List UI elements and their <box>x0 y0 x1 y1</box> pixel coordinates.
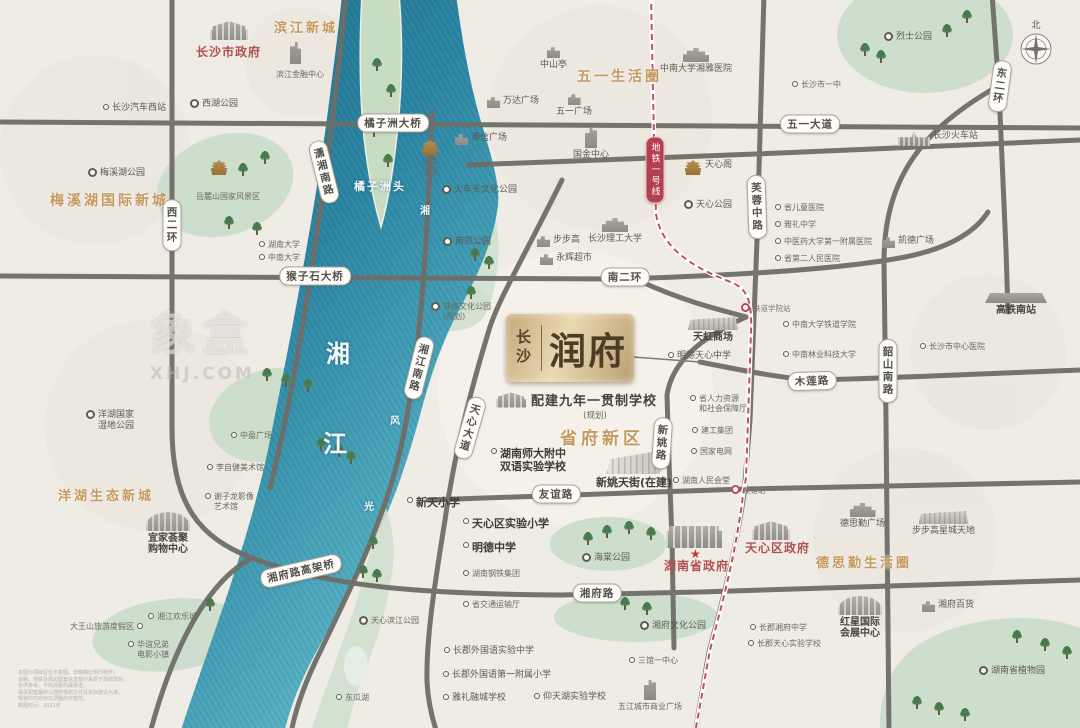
poi-text: 滨江金融中心 <box>276 70 324 80</box>
poi-text: 湘江欢乐城 <box>157 612 197 622</box>
tree-icon <box>962 10 972 23</box>
poi-label <box>666 526 722 548</box>
poi-text: 步步高 <box>553 235 580 246</box>
poi-label: 中南大学铁道学院 <box>783 320 856 330</box>
poi-marker-icon <box>103 104 109 110</box>
poi-label: 步步高 <box>537 235 580 247</box>
poi-marker-icon <box>690 395 696 401</box>
bldw-icon <box>850 503 876 517</box>
poi-marker-icon <box>783 321 789 327</box>
road-label: 友谊路 <box>532 485 581 504</box>
poi-label <box>752 520 790 540</box>
train-icon <box>898 131 930 146</box>
poi-marker-icon <box>673 477 679 483</box>
poi-label: 谢子龙影像 艺术馆 <box>205 492 254 512</box>
poi-text: 天心公园 <box>696 200 732 211</box>
poi-text: 华谊兄弟 电影小镇 <box>137 640 169 660</box>
poi-label: 海信广场 <box>455 133 507 145</box>
poi-marker-icon <box>463 601 469 607</box>
poi-marker-icon <box>668 352 674 358</box>
poi-text: 宜家荟聚 购物中心 <box>148 533 188 555</box>
tree-icon <box>224 216 234 229</box>
poi-label: 中南大学湘雅医院 <box>660 48 732 75</box>
poi-label: 东瓜湖 <box>336 693 369 703</box>
poi-marker-icon <box>792 81 798 87</box>
poi-marker-icon <box>231 432 237 438</box>
poi-label: 明德天心中学 <box>668 351 731 362</box>
poi-marker-icon <box>359 616 368 625</box>
poi-label: 湘江欢乐城 <box>148 612 197 622</box>
poi-text: 长郡外国语第一附属小学 <box>452 670 551 681</box>
bld-icon <box>547 46 560 58</box>
poi-text: 长沙市政府 <box>196 47 261 58</box>
poi-text: 凯德广场 <box>898 236 934 247</box>
poi-marker-icon <box>190 99 199 108</box>
poi-label: 湖南大学 <box>259 240 300 250</box>
poi-text: 中南大学湘雅医院 <box>660 64 732 75</box>
poi-text: 湖南大学 <box>268 240 300 250</box>
poi-label: 省儿童医院 <box>775 203 824 213</box>
poi-label: 德思勤广场 <box>840 503 885 530</box>
poi-marker-icon <box>443 694 449 700</box>
disclaimer: 本图为项目区位示意图，非精确比例尺制作，道路、地铁及周边配套信息部分来源于政府规… <box>18 670 128 709</box>
poi-label: 杜甫 江阁 <box>421 140 439 177</box>
disclaimer-line: 制图时间：2021年 <box>18 703 128 710</box>
poi-text: 天心滨江公园 <box>371 616 419 626</box>
poi-label: 长沙汽车西站 <box>103 103 166 114</box>
tree-icon <box>624 521 634 534</box>
tree-icon <box>262 368 272 381</box>
poi-text: 湖南钢铁集团 <box>472 569 520 579</box>
poi-label: 天心公园 <box>684 200 732 211</box>
poi-marker-icon <box>128 641 134 647</box>
tree-icon <box>466 286 476 299</box>
mallw-icon <box>688 317 738 330</box>
poi-marker-icon <box>783 351 789 357</box>
tree-icon <box>205 598 215 611</box>
poi-label: 五江城市商业广场 <box>618 680 682 712</box>
poi-marker-icon <box>629 657 635 663</box>
river-label: 光 <box>364 498 376 513</box>
poi-text: 国金中心 <box>573 150 609 161</box>
poi-text: 永辉超市 <box>556 253 592 264</box>
road-label: 木莲路 <box>787 371 836 392</box>
road-label: 新姚路 <box>651 417 674 470</box>
poi-label: 长沙市中心医院 <box>920 342 985 352</box>
poi-label: 长沙市一中 <box>792 80 841 90</box>
poi-marker-icon <box>748 640 754 646</box>
poi-text: 天虹商场 <box>693 332 733 343</box>
poi-marker-icon <box>920 343 926 349</box>
poi-marker-icon <box>443 237 452 246</box>
bldw-icon <box>683 48 709 62</box>
poi-text: 中山亭 <box>540 60 567 71</box>
poi-label: 中盈广场 <box>231 431 272 441</box>
poi-text: 大王山旅游度假区 <box>70 622 134 632</box>
poi-label: 雅礼中学 <box>775 220 816 230</box>
road-label: 橘子洲大桥 <box>357 114 429 133</box>
poi-text: 长沙火车站 <box>933 131 978 142</box>
poi-label: 湘府百货 <box>922 600 974 612</box>
tree-icon <box>912 696 922 709</box>
poi-label <box>210 160 228 175</box>
road-label: 南二环 <box>601 268 650 287</box>
compass: 北 <box>1018 18 1054 71</box>
poi-text: 省交通运输厅 <box>472 600 520 610</box>
poi-text: 步步高星城天地 <box>912 526 975 537</box>
temple-icon <box>210 160 228 175</box>
poi-label: 烈士公园 <box>884 32 932 43</box>
poi-marker-icon <box>205 493 211 499</box>
poi-text: 长沙市中心医院 <box>929 342 985 352</box>
tree-icon <box>484 256 494 269</box>
poi-label: 省人力资源 和社会保障厅 <box>690 394 747 414</box>
poi-label: 五一广场 <box>556 93 592 118</box>
tower2-icon <box>290 42 301 64</box>
tree-icon <box>358 565 368 578</box>
flat-icon <box>985 293 1047 303</box>
poi-label: 天心滨江公园 <box>359 616 419 626</box>
project-school-note: 配建九年一贯制学校 <box>496 390 657 409</box>
bld-icon <box>922 600 935 612</box>
poi-label: 湖南师大附中 双语实验学校 <box>491 447 566 473</box>
poi-text: 中南林业科技大学 <box>792 350 856 360</box>
poi-text: 长沙理工大学 <box>588 234 642 245</box>
poi-label: 湖南省植物园 <box>979 666 1045 677</box>
poi-text: 湖南省政府 <box>664 561 729 572</box>
compass-icon <box>1018 31 1054 67</box>
poi-label: 建工集团 <box>692 426 733 436</box>
poi-text: 中医药大学第一附属医院 <box>784 237 872 247</box>
poi-label: 中山亭 <box>540 46 567 71</box>
river-label: 江 <box>323 424 349 459</box>
poi-text: 湖南省植物园 <box>991 666 1045 677</box>
poi-marker-icon <box>463 518 469 524</box>
tree-icon <box>1012 630 1022 643</box>
poi-text: 西湖公园 <box>202 99 238 110</box>
poi-text: 国家电网 <box>700 447 732 457</box>
poi-label <box>290 42 301 64</box>
district-label-shengfu: 省府新区 <box>560 424 644 449</box>
poi-text: 天心阁 <box>705 160 732 171</box>
poi-marker-icon <box>442 185 451 194</box>
poi-text: 火车头文化公园 <box>454 185 517 196</box>
ikea-icon <box>838 596 882 615</box>
project-city: 长沙 <box>513 329 534 367</box>
poi-label: 万达广场 <box>487 96 539 108</box>
poi-text: 湖南人民会堂 <box>682 476 730 486</box>
poi-label: 新天小学 <box>407 496 460 509</box>
road-label: 五一大道 <box>780 115 840 134</box>
poi-text: 省人力资源 和社会保障厅 <box>699 394 747 414</box>
poi-marker-icon <box>407 497 413 503</box>
poi-label: 铁路文化公园 (规划) <box>431 302 491 322</box>
poi-text: 湖南师大附中 双语实验学校 <box>500 447 566 473</box>
poi-marker-icon <box>431 302 440 311</box>
gov-icon <box>752 520 790 540</box>
poi-label: 长郡天心实验学校 <box>748 639 821 649</box>
road-label: 韶山南路 <box>879 339 898 403</box>
poi-text: 中盈广场 <box>240 431 272 441</box>
poi-label: 湖南钢铁集团 <box>463 569 520 579</box>
tree-icon <box>602 525 612 538</box>
river-label: 湘 <box>326 334 352 369</box>
tree-icon <box>583 532 593 545</box>
poi-label: 长沙市政府 <box>196 47 261 58</box>
poi-text: 三馆一中心 <box>638 656 678 666</box>
poi-marker-icon <box>884 32 893 41</box>
poi-marker-icon <box>775 221 781 227</box>
poi-marker-icon <box>137 623 143 629</box>
road-label: 湘府路 <box>573 584 622 603</box>
poi-marker-icon <box>444 647 450 653</box>
tree-icon <box>281 374 291 387</box>
tree-icon <box>470 248 480 261</box>
poi-label: 长郡外国语实验中学 <box>444 646 534 657</box>
metro-line-badge: 地铁一号线 <box>646 137 665 204</box>
poi-marker-icon <box>775 204 781 210</box>
poi-text: 新天小学 <box>416 496 460 509</box>
ikea-icon <box>146 512 190 531</box>
poi-text: 德思勤广场 <box>840 519 885 530</box>
poi-text: 中南大学铁道学院 <box>792 320 856 330</box>
poi-text: 南郊公园 <box>455 237 491 248</box>
poi-label: 永辉超市 <box>540 253 592 265</box>
tower-icon <box>644 680 656 700</box>
poi-text: 天心区政府 <box>745 543 810 554</box>
poi-text: 雅礼融城学校 <box>452 693 506 704</box>
tree-icon <box>642 602 652 615</box>
poi-label: 天心区政府 <box>745 543 810 554</box>
poi-marker-icon <box>684 200 693 209</box>
tree-icon <box>860 43 870 56</box>
poi-label: 梅溪湖公园 <box>88 168 145 179</box>
poi-marker-icon <box>148 613 154 619</box>
poi-text: 雅礼中学 <box>784 220 816 230</box>
bldw-icon <box>602 218 628 232</box>
poi-text: 天心区实验小学 <box>472 517 549 530</box>
poi-marker-icon <box>692 427 698 433</box>
tree-icon <box>252 222 262 235</box>
poi-label: 长郡外国语第一附属小学 <box>443 670 551 681</box>
project-name: 润府 <box>549 321 627 375</box>
tree-icon <box>372 569 382 582</box>
poi-marker-icon <box>775 238 781 244</box>
poi-text: 长郡天心实验学校 <box>757 639 821 649</box>
poi-label: 步步高星城天地 <box>912 511 975 537</box>
poi-label: 宜家荟聚 购物中心 <box>146 512 190 555</box>
project-logo: 长沙 润府 <box>506 314 634 382</box>
poi-label: 西湖公园 <box>190 99 238 110</box>
bld-icon <box>487 96 500 108</box>
metro-station-icon <box>741 303 750 312</box>
poi-text: 湘府百货 <box>938 600 974 611</box>
tree-icon <box>238 163 248 176</box>
tree-icon <box>620 597 630 610</box>
poi-label: 长沙理工大学 <box>588 218 642 245</box>
poi-text: 新姚天街(在建) <box>596 476 672 489</box>
poi-label: 湘府文化公园 <box>640 621 706 632</box>
poi-label: 湖南人民会堂 <box>673 476 730 486</box>
tree-icon <box>383 154 393 167</box>
poi-label: 海棠公园 <box>582 553 630 564</box>
poi-text: 五一广场 <box>556 107 592 118</box>
poi-label: 高铁南站 <box>985 293 1047 316</box>
poi-label: 天心区实验小学 <box>463 517 549 530</box>
poi-text: 东瓜湖 <box>345 693 369 703</box>
poi-label: 洋湖国家 湿地公园 <box>86 410 134 432</box>
tree-icon <box>942 24 952 37</box>
poi-text: 长沙汽车西站 <box>112 103 166 114</box>
tree-icon <box>934 702 944 715</box>
tree-icon <box>876 50 886 63</box>
poi-label: 明德中学 <box>463 541 516 554</box>
poi-text: 明德中学 <box>472 541 516 554</box>
river-label: 橘子洲头 <box>354 178 406 194</box>
metro-station-icon <box>731 485 740 494</box>
poi-marker-icon <box>582 553 591 562</box>
poi-text: 高铁南站 <box>996 305 1036 316</box>
poi-text: 中南大学 <box>268 253 300 263</box>
mallw-icon <box>919 511 969 524</box>
poi-text: 省第二人民医院 <box>784 254 840 264</box>
disclaimer-line: 本图为项目区位示意图，非精确比例尺制作， <box>18 670 128 677</box>
poi-text: 谢子龙影像 艺术馆 <box>214 492 254 512</box>
compass-north-label: 北 <box>1018 18 1054 31</box>
road-label: 芙蓉中路 <box>746 175 767 240</box>
poi-label: 省交通运输厅 <box>463 600 520 610</box>
tree-icon <box>368 536 378 549</box>
poi-marker-icon <box>750 624 756 630</box>
poi-label: 天心阁 <box>684 160 732 175</box>
poi-text: 梅溪湖公园 <box>100 168 145 179</box>
poi-marker-icon <box>88 168 97 177</box>
tree-icon <box>960 708 970 721</box>
poi-label <box>210 20 248 40</box>
tower-icon <box>585 128 597 148</box>
poi-label: 滨江金融中心 <box>276 70 324 80</box>
poi-marker-icon <box>979 666 988 675</box>
temple-icon <box>684 160 702 175</box>
bld-icon <box>882 236 895 248</box>
poi-text: 建工集团 <box>701 426 733 436</box>
poi-label: 中南大学 <box>259 253 300 263</box>
poi-text: 长郡湘府中学 <box>759 623 807 633</box>
district-label: 滨江新城 <box>274 17 338 36</box>
poi-text: 长沙市一中 <box>801 80 841 90</box>
poi-marker-icon <box>86 410 95 419</box>
poi-marker-icon <box>640 621 649 630</box>
bld-icon <box>540 253 553 265</box>
project-school-note-sub: (规划) <box>540 409 650 421</box>
school-icon <box>496 392 526 408</box>
poi-label: 凯德广场 <box>882 236 934 248</box>
poi-label: 长郡湘府中学 <box>750 623 807 633</box>
tree-icon <box>646 527 656 540</box>
poi-label: 红星国际 会展中心 <box>838 596 882 639</box>
tree-icon <box>303 379 313 392</box>
poi-label: 中医药大学第一附属医院 <box>775 237 872 247</box>
poi-label: 长沙火车站 <box>898 131 978 146</box>
poi-text: 明德天心中学 <box>677 351 731 362</box>
poi-marker-icon <box>336 694 342 700</box>
road-label: 西二环 <box>163 199 182 251</box>
poi-label: 友谊站 <box>731 485 766 496</box>
poi-text: 省儿童医院 <box>784 203 824 213</box>
poi-label: 湖南省政府 <box>664 561 729 572</box>
poi-text: 湘府文化公园 <box>652 621 706 632</box>
poi-label: 大王山旅游度假区 <box>70 622 143 632</box>
tree-icon <box>372 58 382 71</box>
poi-marker-icon <box>443 671 449 677</box>
poi-label: 国家电网 <box>691 447 732 457</box>
poi-marker-icon <box>259 241 265 247</box>
poi-text: 长郡外国语实验中学 <box>453 646 534 657</box>
logo-divider <box>541 325 542 371</box>
poi-marker-icon <box>207 464 213 470</box>
river-label: 湘 <box>420 202 432 217</box>
poi-marker-icon <box>534 693 540 699</box>
poi-marker-icon <box>491 448 497 454</box>
bld-icon <box>568 93 581 105</box>
district-label: 德思勤生活圈 <box>816 552 912 571</box>
temple-icon <box>421 140 439 155</box>
poi-text: 友谊站 <box>743 485 766 496</box>
tree-icon <box>386 84 396 97</box>
tree-icon <box>260 151 270 164</box>
river-label: 风 <box>390 412 402 427</box>
poi-label: 李自健美术馆 <box>207 463 264 473</box>
poi-marker-icon <box>463 570 469 576</box>
poi-label: 中南林业科技大学 <box>783 350 856 360</box>
poi-marker-icon <box>259 254 265 260</box>
gov-icon <box>210 20 248 40</box>
poi-marker-icon <box>775 255 781 261</box>
poi-text: 仰天湖实验学校 <box>543 692 606 703</box>
poi-text: 杜甫 江阁 <box>422 157 438 177</box>
poi-text: 李自健美术馆 <box>216 463 264 473</box>
poi-marker-icon <box>463 542 469 548</box>
poi-label: 仰天湖实验学校 <box>534 692 606 703</box>
poi-text: 洋湖国家 湿地公园 <box>98 410 134 432</box>
bld-icon <box>455 133 468 145</box>
poi-text: 红星国际 会展中心 <box>840 617 880 639</box>
poi-text: 万达广场 <box>503 96 539 107</box>
poi-label: 岳麓山国家风景区 <box>196 192 260 202</box>
poi-text: 海棠公园 <box>594 553 630 564</box>
bld-icon <box>537 235 550 247</box>
poi-label: 天虹商场 <box>688 317 738 343</box>
tree-icon <box>1040 638 1050 651</box>
road-label: 猴子石大桥 <box>279 267 351 286</box>
poi-text: 岳麓山国家风景区 <box>196 192 260 202</box>
poi-marker-icon <box>691 448 697 454</box>
poi-label: 火车头文化公园 <box>442 185 517 196</box>
poi-label: 省第二人民医院 <box>775 254 840 264</box>
poi-label: 三馆一中心 <box>629 656 678 666</box>
govw-icon <box>666 526 722 548</box>
poi-label: 南郊公园 <box>443 237 491 248</box>
poi-label: 铁道学院站 <box>741 303 791 314</box>
donggua-lake <box>344 646 368 686</box>
poi-text: 烈士公园 <box>896 32 932 43</box>
location-map: 北 长沙 润府 配建九年一贯制学校 (规划) 省府新区 象盒 XHJ.COM 本… <box>0 0 1080 728</box>
district-label: 洋湖生态新城 <box>58 485 154 504</box>
poi-text: 铁道学院站 <box>753 303 791 314</box>
poi-label: 国金中心 <box>573 128 609 161</box>
poi-text: 铁路文化公园 (规划) <box>443 302 491 322</box>
district-label: 五一生活圈 <box>577 66 662 86</box>
